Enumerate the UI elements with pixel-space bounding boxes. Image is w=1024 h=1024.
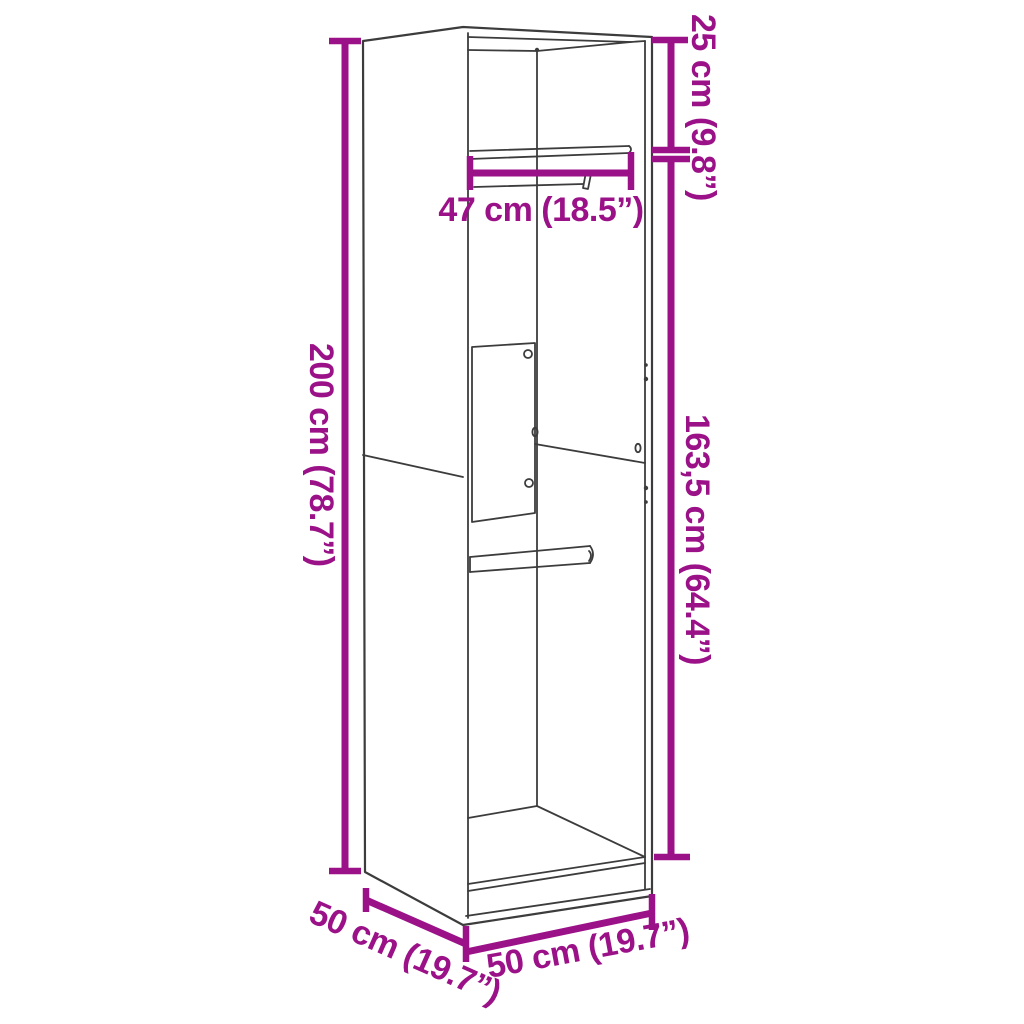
diagram-canvas: 200 cm (78.7”) 25 cm (9.8”) 163,5 cm (64… bbox=[0, 0, 1024, 1024]
dimension-total-height: 200 cm (78.7”) bbox=[302, 41, 361, 871]
wardrobe-drawing bbox=[363, 27, 652, 925]
dimension-top-section: 25 cm (9.8”) bbox=[652, 14, 722, 201]
dim-label-width: 50 cm (19.7”) bbox=[484, 911, 693, 986]
dim-label-lower-section: 163,5 cm (64.4”) bbox=[678, 414, 716, 665]
dimension-lower-section: 163,5 cm (64.4”) bbox=[652, 159, 716, 857]
right-wall-dot-4 bbox=[644, 500, 648, 504]
wardrobe-dimension-diagram: 200 cm (78.7”) 25 cm (9.8”) 163,5 cm (64… bbox=[0, 0, 1024, 1024]
right-wall-dot-3 bbox=[644, 486, 648, 490]
right-wall-dot-1 bbox=[644, 363, 648, 367]
mid-mounting-panel bbox=[472, 343, 535, 522]
dim-label-top-section: 25 cm (9.8”) bbox=[684, 14, 722, 201]
right-wall-dot-2 bbox=[644, 377, 648, 381]
dim-label-total-height: 200 cm (78.7”) bbox=[302, 343, 340, 567]
dim-label-rail-width: 47 cm (18.5”) bbox=[438, 191, 643, 229]
